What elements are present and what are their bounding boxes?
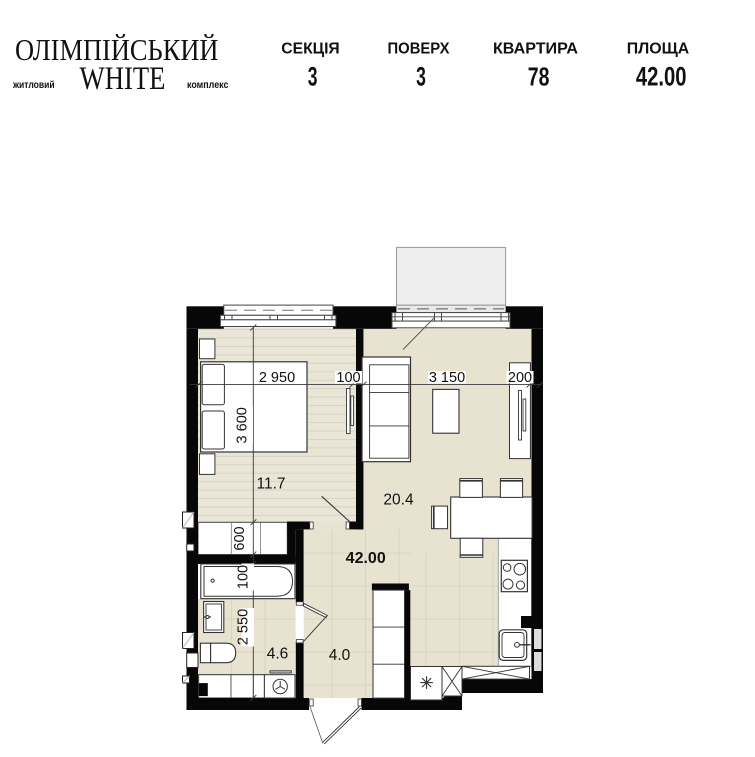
svg-text:3: 3 <box>308 60 318 91</box>
svg-text:200: 200 <box>508 370 532 386</box>
svg-text:WHITE: WHITE <box>80 61 166 97</box>
svg-text:ПОВЕРХ: ПОВЕРХ <box>388 41 450 58</box>
svg-text:11.7: 11.7 <box>256 476 285 493</box>
svg-text:ПЛОЩА: ПЛОЩА <box>627 41 690 58</box>
svg-text:78: 78 <box>528 62 550 91</box>
svg-text:20.4: 20.4 <box>383 492 414 509</box>
svg-text:100: 100 <box>336 370 360 386</box>
svg-text:42.00: 42.00 <box>346 550 386 567</box>
svg-text:3: 3 <box>416 60 426 91</box>
svg-text:600: 600 <box>232 526 248 550</box>
svg-text:4.6: 4.6 <box>267 646 289 663</box>
svg-text:СЕКЦІЯ: СЕКЦІЯ <box>281 41 339 58</box>
svg-text:42.00: 42.00 <box>636 63 687 92</box>
svg-text:4.0: 4.0 <box>329 647 351 664</box>
svg-text:КВАРТИРА: КВАРТИРА <box>493 41 578 58</box>
svg-text:3 600: 3 600 <box>235 407 251 443</box>
svg-text:2 550: 2 550 <box>236 609 252 645</box>
svg-text:100: 100 <box>236 565 252 589</box>
svg-text:комплекс: комплекс <box>187 80 229 91</box>
svg-text:житловий: житловий <box>12 80 54 91</box>
svg-text:3 150: 3 150 <box>429 370 465 386</box>
svg-text:2 950: 2 950 <box>259 370 295 386</box>
